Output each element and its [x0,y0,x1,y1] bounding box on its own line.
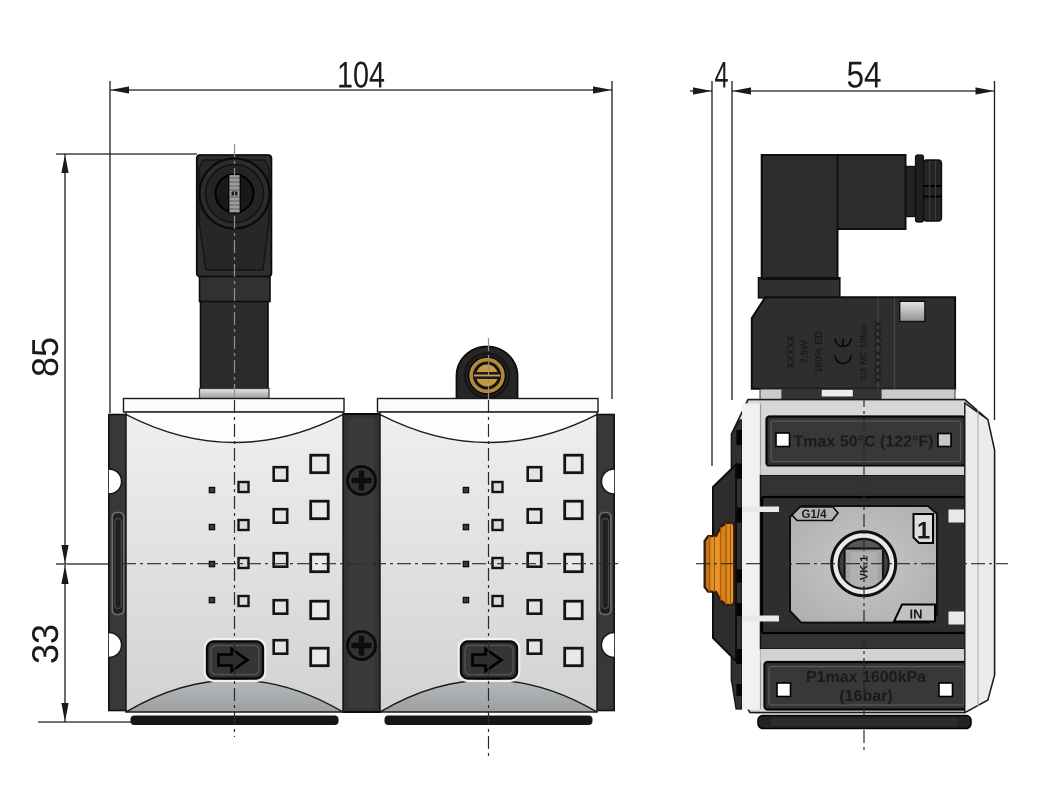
svg-text:33: 33 [25,624,66,664]
svg-text:85: 85 [25,337,66,377]
svg-text:P1max 1600kPa: P1max 1600kPa [806,669,926,686]
svg-text:104: 104 [337,55,385,96]
svg-text:2,5W: 2,5W [800,340,811,364]
svg-text:XXXXX.XXXX: XXXXX.XXXX [874,320,885,383]
svg-text:1: 1 [917,518,930,545]
svg-text:IN: IN [910,607,923,622]
svg-text:3/2 NC 10bar: 3/2 NC 10bar [859,323,870,381]
svg-text:G1/4: G1/4 [802,509,828,521]
svg-text:(16bar): (16bar) [839,688,892,705]
svg-text:XXXXX: XXXXX [786,335,797,369]
svg-text:4: 4 [715,55,729,96]
svg-text:54: 54 [847,55,882,96]
svg-text:100% ED: 100% ED [814,331,825,373]
